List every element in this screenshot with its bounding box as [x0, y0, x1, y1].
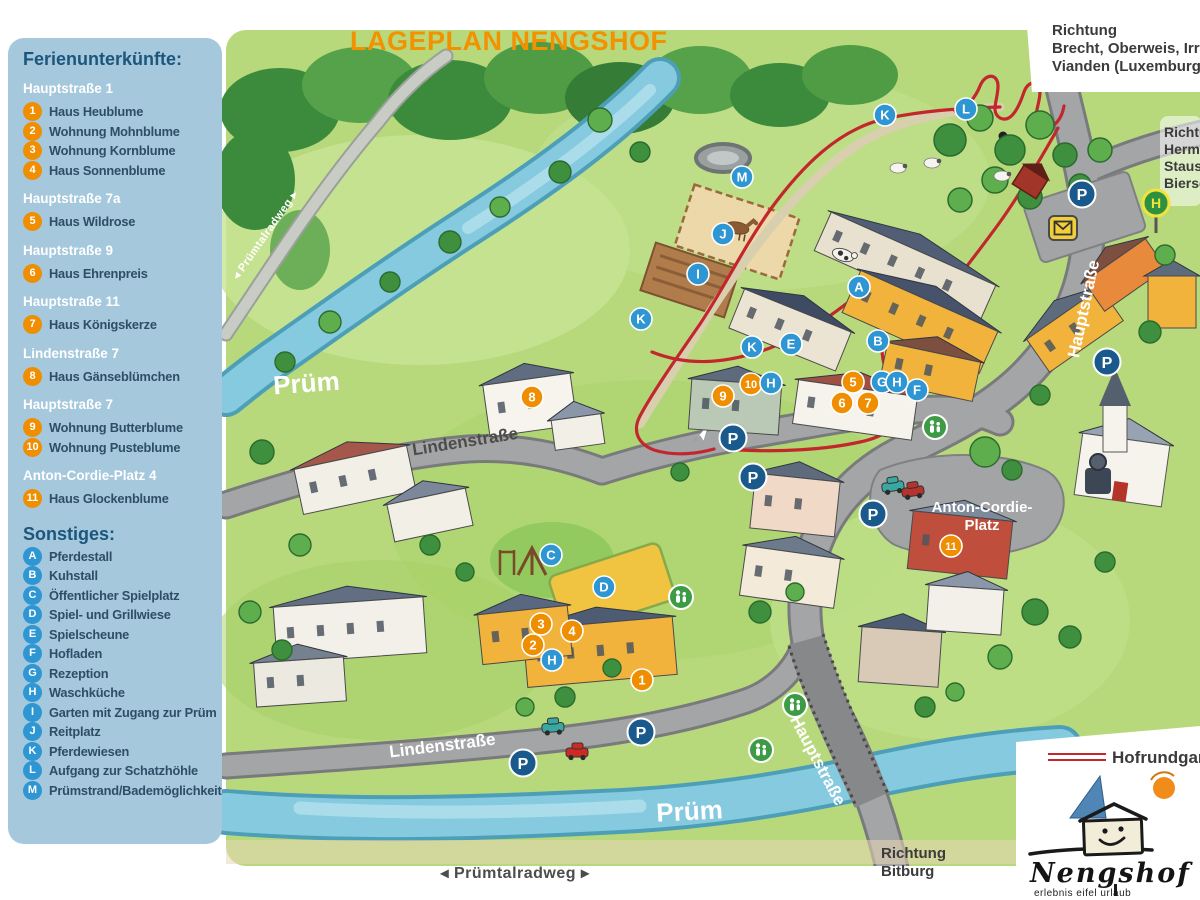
legend-badge-10: 10 — [23, 438, 42, 457]
svg-text:2: 2 — [529, 638, 536, 653]
map-marker-C: C — [540, 544, 562, 566]
legend-badge-11: 11 — [23, 489, 42, 508]
parking-icon: P — [740, 464, 767, 491]
map-marker-K: K — [630, 308, 652, 330]
map-label: Prüm — [656, 794, 724, 827]
svg-text:J: J — [719, 227, 726, 242]
legend-badge-H: H — [23, 683, 42, 702]
legend-item-label: Haus Königskerze — [49, 317, 157, 332]
parking-icon: P — [1094, 349, 1121, 376]
legend-badge-M: M — [23, 781, 42, 800]
map-marker-9: 9 — [712, 385, 734, 407]
tree — [588, 108, 612, 132]
legend-item-8: 8Haus Gänseblümchen — [23, 367, 214, 387]
map-marker-I: I — [687, 263, 709, 285]
legend-badge-G: G — [23, 664, 42, 683]
legend-item-label: Pferdewiesen — [49, 744, 129, 759]
legend-item-C: CÖffentlicher Spielplatz — [23, 586, 214, 606]
svg-text:H: H — [547, 653, 556, 668]
legend-badge-A: A — [23, 547, 42, 566]
tree — [603, 659, 621, 677]
tree — [456, 563, 474, 581]
svg-text:A: A — [854, 280, 864, 295]
tree — [1026, 111, 1054, 139]
svg-text:P: P — [728, 431, 739, 448]
tree — [946, 683, 964, 701]
accommodation-groups: Hauptstraße 11Haus Heublume2Wohnung Mohn… — [23, 81, 214, 509]
svg-text:10: 10 — [745, 379, 757, 391]
svg-text:P: P — [868, 507, 879, 524]
legend-badge-K: K — [23, 742, 42, 761]
tree — [555, 687, 575, 707]
tree — [1002, 460, 1022, 480]
svg-text:P: P — [518, 756, 529, 773]
svg-text:K: K — [747, 340, 757, 355]
legend-item-M: MPrümstrand/Bademöglichkeit — [23, 781, 214, 801]
map-marker-D: D — [593, 576, 615, 598]
tree — [1053, 143, 1077, 167]
map-marker-E: E — [780, 333, 802, 355]
svg-text:P: P — [1077, 187, 1088, 204]
map-marker-3: 3 — [530, 613, 552, 635]
legend-item-label: Garten mit Zugang zur Prüm — [49, 705, 217, 720]
tree — [1139, 321, 1161, 343]
tree — [934, 124, 966, 156]
tree — [948, 188, 972, 212]
address-group-label: Hauptstraße 11 — [23, 294, 214, 310]
legend-badge-5: 5 — [23, 212, 42, 231]
logo-sun-icon — [1153, 777, 1175, 799]
map-label: Platz — [964, 517, 999, 534]
legend-item-10: 10Wohnung Pusteblume — [23, 438, 214, 458]
legend-item-label: Wohnung Mohnblume — [49, 124, 180, 139]
svg-text:F: F — [913, 383, 921, 398]
address-group-label: Lindenstraße 7 — [23, 346, 214, 362]
address-group-label: Hauptstraße 1 — [23, 81, 214, 97]
svg-text:B: B — [873, 334, 882, 349]
legend-item-label: Haus Glockenblume — [49, 491, 169, 506]
svg-text:4: 4 — [568, 624, 576, 639]
tree — [319, 311, 341, 333]
address-group-label: Hauptstraße 9 — [23, 243, 214, 259]
map-marker-4: 4 — [561, 620, 583, 642]
svg-text:L: L — [962, 102, 970, 117]
legend-item-label: Pferdestall — [49, 549, 112, 564]
direction-top-right: Richtung Brecht, Oberweis, Irrel, Viande… — [1052, 22, 1200, 76]
accommodations-heading: Ferienunterkünfte: — [23, 48, 214, 70]
map-marker-11: 11 — [940, 535, 962, 557]
legend-sidebar: Ferienunterkünfte: Hauptstraße 11Haus He… — [8, 38, 222, 844]
map-marker-H: H — [541, 649, 563, 671]
legend-item-label: Hofladen — [49, 646, 102, 661]
pedestrian-sign-icon — [669, 585, 693, 609]
legend-item-2: 2Wohnung Mohnblume — [23, 122, 214, 142]
pedestrian-sign-icon — [783, 693, 807, 717]
legend-item-L: LAufgang zur Schatzhöhle — [23, 761, 214, 781]
legend-badge-9: 9 — [23, 418, 42, 437]
legend-badge-B: B — [23, 566, 42, 585]
tree — [250, 440, 274, 464]
legend-item-label: Haus Ehrenpreis — [49, 266, 148, 281]
tree — [380, 272, 400, 292]
svg-text:D: D — [599, 580, 608, 595]
legend-item-5: 5Haus Wildrose — [23, 212, 214, 232]
legend-item-label: Wohnung Kornblume — [49, 143, 175, 158]
address-group-label: Hauptstraße 7 — [23, 397, 214, 413]
legend-item-3: 3Wohnung Kornblume — [23, 141, 214, 161]
pedestrian-sign-icon — [749, 738, 773, 762]
svg-text:3: 3 — [537, 617, 544, 632]
legend-badge-F: F — [23, 644, 42, 663]
map-marker-2: 2 — [522, 634, 544, 656]
map-marker-K: K — [874, 104, 896, 126]
pedestrian-sign-icon — [923, 415, 947, 439]
post-box-icon — [1049, 216, 1077, 240]
legend-item-label: Spiel- und Grillwiese — [49, 607, 171, 622]
svg-text:E: E — [787, 337, 796, 352]
map-label: Prüm — [272, 366, 340, 401]
svg-text:1: 1 — [638, 673, 645, 688]
legend-item-label: Rezeption — [49, 666, 108, 681]
tree — [289, 534, 311, 556]
svg-text:K: K — [880, 108, 890, 123]
legend-item-9: 9Wohnung Butterblume — [23, 418, 214, 438]
legend-item-label: Waschküche — [49, 685, 125, 700]
map-marker-7: 7 — [857, 392, 879, 414]
svg-text:H: H — [1151, 195, 1161, 211]
others-list: APferdestallBKuhstallCÖffentlicher Spiel… — [23, 547, 214, 801]
address-group-label: Anton-Cordie-Platz 4 — [23, 468, 214, 484]
legend-badge-J: J — [23, 722, 42, 741]
tree — [630, 142, 650, 162]
svg-text:5: 5 — [849, 375, 856, 390]
svg-text:P: P — [748, 470, 759, 487]
legend-item-1: 1Haus Heublume — [23, 102, 214, 122]
map-marker-10: 10 — [740, 373, 762, 395]
map-marker-B: B — [867, 330, 889, 352]
hofrundgang-label: Hofrundgang — [1112, 748, 1200, 768]
svg-text:C: C — [546, 548, 556, 563]
legend-item-K: KPferdewiesen — [23, 742, 214, 762]
tree — [490, 197, 510, 217]
legend-item-label: Aufgang zur Schatzhöhle — [49, 763, 198, 778]
svg-text:H: H — [892, 375, 901, 390]
tree — [970, 437, 1000, 467]
legend-badge-3: 3 — [23, 141, 42, 160]
svg-text:9: 9 — [719, 389, 726, 404]
map-marker-5: 5 — [842, 371, 864, 393]
map-marker-1: 1 — [631, 669, 653, 691]
map-marker-A: A — [848, 276, 870, 298]
legend-item-4: 4Haus Sonnenblume — [23, 161, 214, 181]
tree — [995, 135, 1025, 165]
legend-item-J: JReitplatz — [23, 722, 214, 742]
tree — [671, 463, 689, 481]
legend-item-label: Haus Heublume — [49, 104, 143, 119]
legend-item-I: IGarten mit Zugang zur Prüm — [23, 703, 214, 723]
logo-wordmark: Nengshof — [1029, 858, 1193, 889]
tree — [1095, 552, 1115, 572]
tree — [239, 601, 261, 623]
parking-icon: P — [720, 425, 747, 452]
legend-item-7: 7Haus Königskerze — [23, 315, 214, 335]
logo-house — [1083, 819, 1142, 855]
tree — [915, 697, 935, 717]
address-group-label: Hauptstraße 7a — [23, 191, 214, 207]
legend-badge-4: 4 — [23, 161, 42, 180]
legend-badge-6: 6 — [23, 264, 42, 283]
svg-text:6: 6 — [838, 396, 845, 411]
legend-item-11: 11Haus Glockenblume — [23, 489, 214, 509]
map-label: Anton-Cordie- — [932, 499, 1033, 516]
svg-text:K: K — [636, 312, 646, 327]
parking-icon: P — [510, 750, 537, 777]
legend-item-D: DSpiel- und Grillwiese — [23, 605, 214, 625]
map-marker-6: 6 — [831, 392, 853, 414]
legend-item-label: Wohnung Butterblume — [49, 420, 183, 435]
svg-text:I: I — [696, 267, 700, 282]
svg-text:P: P — [636, 725, 647, 742]
tree — [549, 161, 571, 183]
tree — [786, 583, 804, 601]
map-marker-M: M — [731, 166, 753, 188]
legend-item-label: Wohnung Pusteblume — [49, 440, 180, 455]
direction-bitburg: Richtung Bitburg — [881, 845, 946, 881]
bike-path-label: ◂ Prümtalradweg ▸ — [415, 863, 615, 883]
svg-text:H: H — [766, 376, 775, 391]
legend-item-label: Kuhstall — [49, 568, 98, 583]
legend-item-6: 6Haus Ehrenpreis — [23, 264, 214, 284]
tree — [988, 645, 1012, 669]
tree — [439, 231, 461, 253]
legend-item-E: ESpielscheune — [23, 625, 214, 645]
legend-item-F: FHofladen — [23, 644, 214, 664]
svg-text:P: P — [1102, 355, 1113, 372]
legend-badge-D: D — [23, 605, 42, 624]
svg-text:8: 8 — [528, 390, 535, 405]
parking-icon: P — [1069, 181, 1096, 208]
map-marker-K: K — [741, 336, 763, 358]
svg-text:11: 11 — [945, 541, 957, 553]
tree — [516, 698, 534, 716]
legend-item-label: Prümstrand/Bademöglichkeit — [49, 783, 222, 798]
legend-item-label: Haus Wildrose — [49, 214, 135, 229]
legend-badge-8: 8 — [23, 367, 42, 386]
legend-item-label: Reitplatz — [49, 724, 101, 739]
legend-item-label: Haus Sonnenblume — [49, 163, 165, 178]
legend-item-label: Spielscheune — [49, 627, 129, 642]
legend-badge-I: I — [23, 703, 42, 722]
svg-text:M: M — [737, 170, 748, 185]
legend-badge-7: 7 — [23, 315, 42, 334]
parking-icon: P — [628, 719, 655, 746]
legend-badge-L: L — [23, 761, 42, 780]
map-marker-8: 8 — [521, 386, 543, 408]
map-marker-F: F — [906, 379, 928, 401]
map-marker-L: L — [955, 98, 977, 120]
tree — [1030, 385, 1050, 405]
map-marker-H: H — [760, 372, 782, 394]
tree — [1088, 138, 1112, 162]
legend-item-B: BKuhstall — [23, 566, 214, 586]
legend-badge-2: 2 — [23, 122, 42, 141]
tree — [272, 640, 292, 660]
legend-badge-1: 1 — [23, 102, 42, 121]
legend-item-label: Öffentlicher Spielplatz — [49, 588, 180, 603]
others-heading: Sonstiges: — [23, 523, 214, 545]
map-marker-J: J — [712, 223, 734, 245]
tree — [420, 535, 440, 555]
tree — [1022, 599, 1048, 625]
tree — [1155, 245, 1175, 265]
legend-item-H: HWaschküche — [23, 683, 214, 703]
tree — [1059, 626, 1081, 648]
legend-item-G: GRezeption — [23, 664, 214, 684]
legend-item-A: APferdestall — [23, 547, 214, 567]
parking-icon: P — [860, 501, 887, 528]
map-marker-H: H — [886, 371, 908, 393]
tree — [749, 601, 771, 623]
hofrundgang-line-symbol — [1048, 753, 1106, 761]
legend-item-label: Haus Gänseblümchen — [49, 369, 180, 384]
page-title: LAGEPLAN NENGSHOF — [350, 26, 668, 57]
legend-badge-C: C — [23, 586, 42, 605]
direction-right-edge: Richtung Hermesdorf, Stausee Biersdorf — [1164, 124, 1200, 192]
legend-badge-E: E — [23, 625, 42, 644]
svg-text:7: 7 — [864, 396, 871, 411]
